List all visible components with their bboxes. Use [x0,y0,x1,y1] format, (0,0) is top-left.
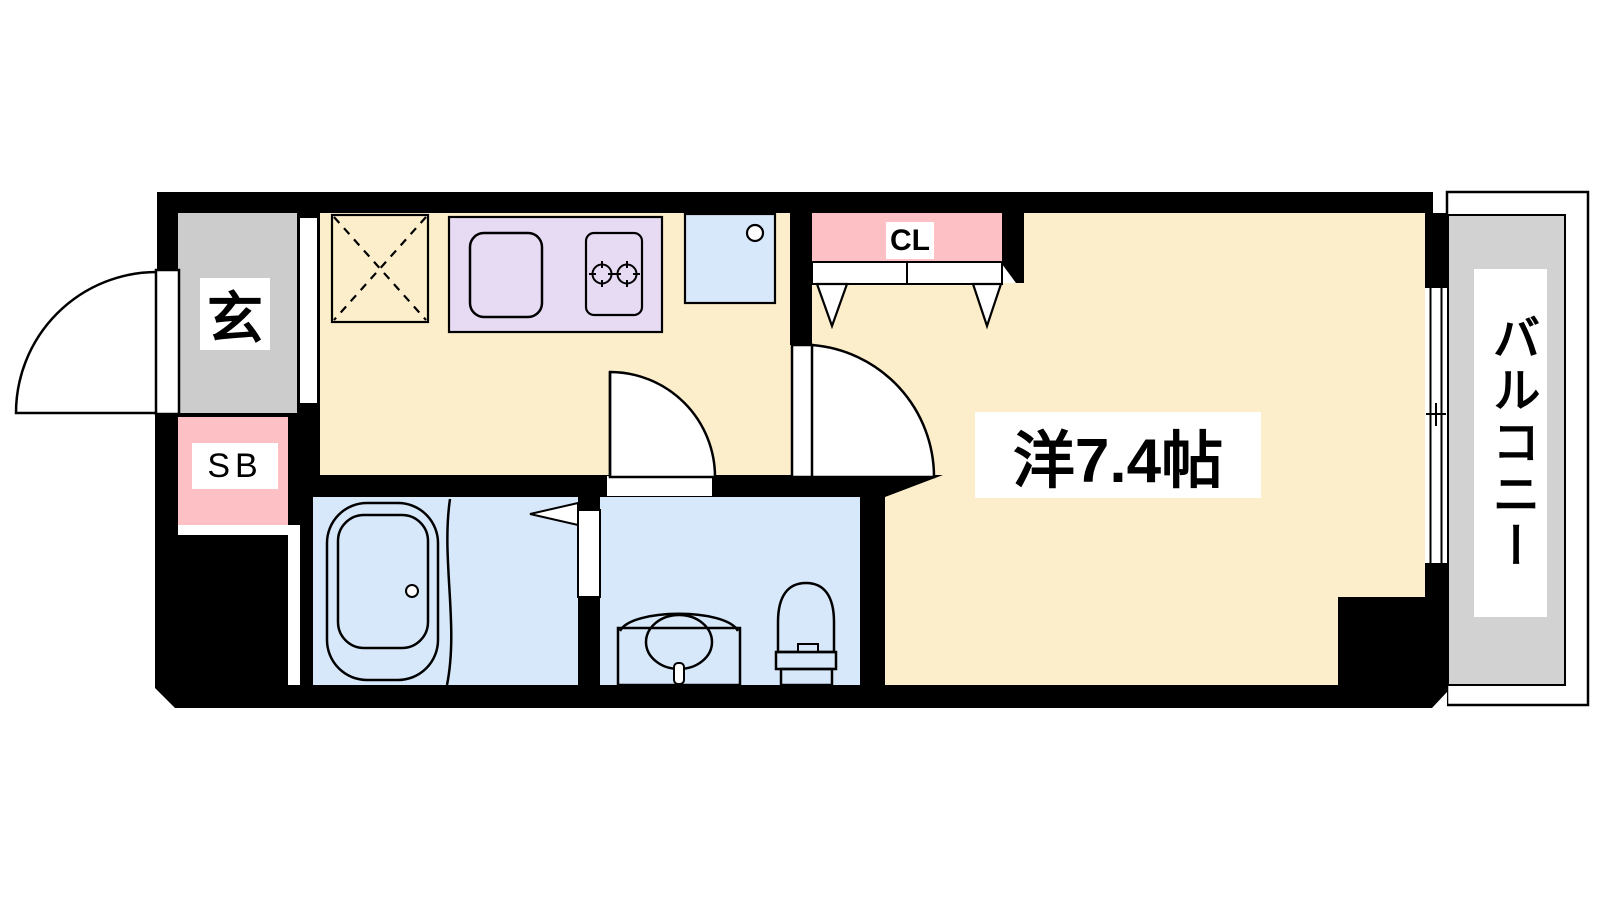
living-door-leaf [792,345,812,477]
washroom-right-wall [860,497,885,685]
entrance-step [300,218,317,403]
floor-plan: 玄 SB CL 洋7.4帖 バルコニー [0,0,1600,900]
entrance-door-swing [16,272,157,413]
closet-label: CL [886,222,934,259]
vanity-faucet [674,663,684,684]
window-wall-lower [1425,563,1447,685]
divider-wall-bottom [578,597,600,685]
entrance-door-leaf [156,270,179,414]
window-wall-upper [1425,213,1447,288]
bathtub-drain [406,585,418,597]
bath-floor [313,497,600,685]
corridor-bottom-wall [313,475,885,497]
pillar-notch [1338,597,1425,685]
living-partition-wall [790,213,812,345]
entrance-side-wall [157,213,178,270]
top-wall [157,192,1433,213]
bottom-wall [155,685,1447,708]
bath-door-track [578,510,600,597]
divider-wall-top [578,497,600,510]
washroom-floor [600,497,860,685]
washroom-doorway-gap [607,476,712,496]
shoe-box-label: SB [192,443,278,489]
mini-sink-faucet [747,225,763,241]
main-room-label: 洋7.4帖 [975,412,1261,498]
shoe-box-gap [178,525,288,535]
entrance-label: 玄 [200,278,270,350]
bath-unit-edge-line [288,525,300,685]
balcony-label: バルコニー [1474,269,1547,617]
